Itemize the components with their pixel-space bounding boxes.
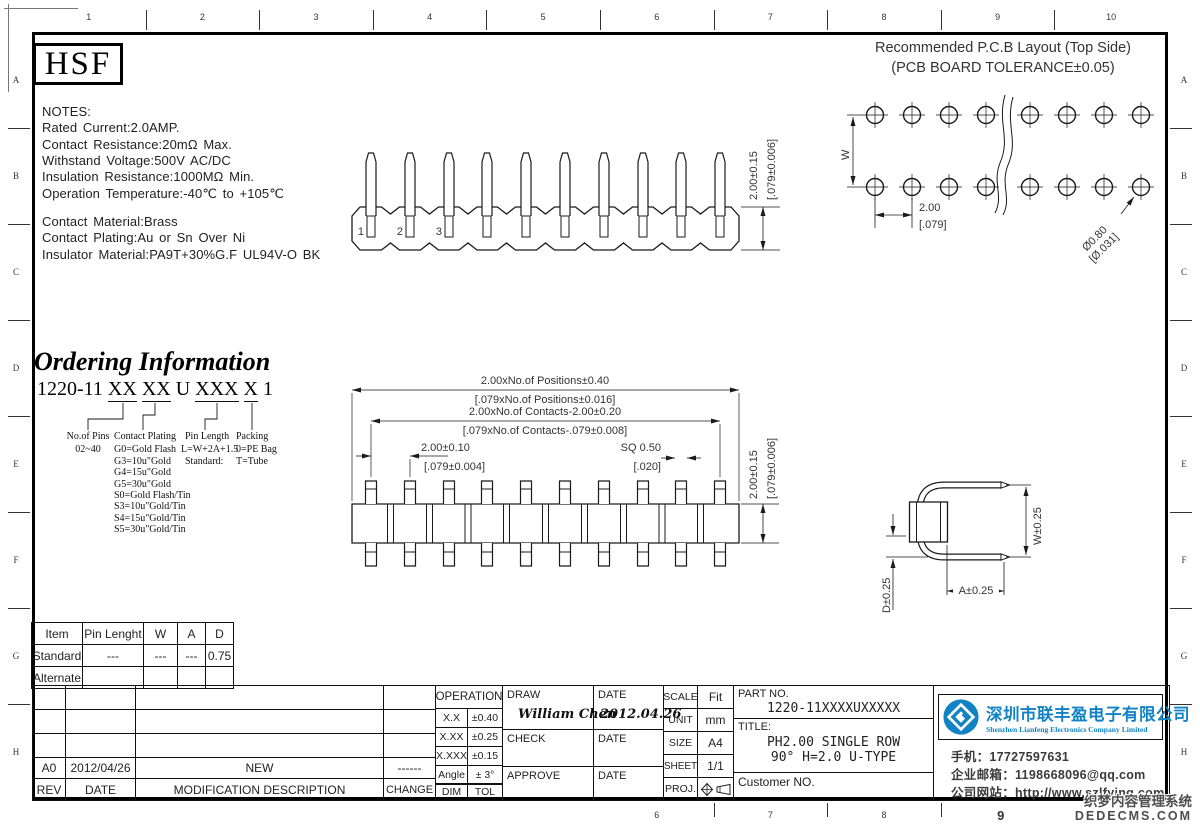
dim-text: D±0.25 (881, 578, 893, 613)
ruler-number: 10 (1054, 12, 1168, 22)
rev-cell (65, 709, 136, 734)
sheet-value: 1/1 (697, 754, 734, 778)
ruler-letter: D (1174, 320, 1194, 416)
dim-a: A±0.25 (947, 545, 1004, 597)
tol-val: ± 3° (467, 765, 503, 785)
insulator-body (352, 504, 739, 543)
part-no-value: 1220-11XXXXUXXXXX (733, 701, 934, 716)
spec-value: 0.75 (205, 644, 234, 667)
ruler-tick (146, 10, 147, 30)
ruler-number: 5 (486, 12, 600, 22)
title-line2: 90° H=2.0 U-TYPE (733, 750, 934, 765)
dim-text: [.079] (919, 219, 947, 231)
col-item: L=W+2A+1.5 (181, 444, 238, 455)
tol-val: ±0.40 (467, 708, 503, 728)
ruler-letter: C (1174, 224, 1194, 320)
ruler-tick (941, 10, 942, 30)
unit-value: mm (697, 708, 734, 732)
insulator-block (910, 502, 948, 542)
watermark-line2: DEDECMS.COM (1075, 809, 1192, 823)
col-item: Standard: (181, 456, 238, 467)
ruler-number: 7 (714, 810, 828, 820)
dim-hole-diameter: Ø0.80 [Ø.031] (1078, 197, 1134, 265)
ruler-number: 9 (941, 12, 1055, 22)
spec-header-item: Item (31, 622, 83, 645)
dim-body-height: 2.00±0.15 [.079±0.006] (741, 139, 780, 250)
ruler-letter: H (6, 704, 26, 800)
customer-no-label: Customer NO. (738, 775, 815, 789)
proj-label: PROJ. (663, 777, 698, 801)
col-item: G0=Gold Flash (114, 444, 191, 455)
watermark-line1: 织梦内容管理系统 (1075, 795, 1192, 809)
tol-dim: X.XXX (435, 746, 468, 766)
note-line: Insulator Material:PA9T+30%G.F UL94V-O B… (42, 247, 372, 263)
part-no-label: PART NO. (738, 688, 789, 700)
rev-change: ------ (383, 757, 436, 779)
ruler-tick (8, 416, 30, 417)
pin-number: 3 (436, 226, 442, 238)
rev-cell (32, 733, 66, 758)
scale-value: Fit (697, 685, 734, 709)
dim-text: W (840, 149, 852, 160)
tol-dim: X.X (435, 708, 468, 728)
tol-val: ±0.25 (467, 727, 503, 747)
dim-pin-square: SQ 0.50 [.020] (621, 442, 701, 473)
ruler-number: 8 (827, 810, 941, 820)
dim-row-spacing-w: W (840, 115, 863, 187)
col-item: T=Tube (236, 456, 277, 467)
rev-cell (383, 709, 436, 734)
rev-cell (65, 685, 136, 710)
dim-text: [.079±0.006] (766, 438, 778, 499)
ruler-tick (827, 803, 828, 817)
rev-cell (32, 709, 66, 734)
ruler-tick (1054, 10, 1055, 30)
ruler-tick (1170, 512, 1192, 513)
ruler-letter: F (1174, 512, 1194, 608)
ruler-number: 2 (146, 12, 260, 22)
hsf-logo-text: HSF (45, 46, 112, 83)
unit-label: UNIT (663, 708, 698, 732)
watermark: 织梦内容管理系统 DEDECMS.COM (1075, 795, 1192, 823)
col-item: S4=15u"Gold/Tin (114, 513, 191, 524)
ordering-col-pins: No.of Pins 02~40 (58, 431, 118, 456)
ordering-col-pinlength: Pin Length L=W+2A+1.5 Standard: (181, 431, 238, 467)
pcb-layout-drawing: W 2.00 [.079] Ø0.80 [Ø.031] (740, 88, 1175, 268)
ordering-col-plating: Contact Plating G0=Gold Flash G3=10u"Gol… (114, 431, 191, 536)
date-label: DATE (598, 689, 627, 701)
spec-row-label: Standard (31, 644, 83, 667)
ruler-letter: B (6, 128, 26, 224)
dim-pin-pitch: 2.00±0.10 [.079±0.004] (356, 442, 485, 477)
col-item: G5=30u"Gold (114, 479, 191, 490)
dim-text: 2.00±0.10 (421, 442, 470, 454)
date-label: DATE (598, 770, 627, 782)
company-name-en: Shenzhen Lianfeng Electronics Company Li… (986, 725, 1190, 734)
dim-text: [.079±0.004] (424, 461, 485, 473)
col-item: S0=Gold Flash/Tin (114, 490, 191, 501)
rev-cell (383, 733, 436, 758)
dim-hole-pitch: 2.00 [.079] (875, 198, 947, 231)
dim-text: 2.00 (919, 202, 940, 214)
size-label: SIZE (663, 731, 698, 755)
ruler-number: 7 (714, 12, 828, 22)
tol-val: ±0.15 (467, 746, 503, 766)
note-line: Contact Material:Brass (42, 214, 372, 230)
tol-val: TOL (467, 783, 503, 801)
proj-symbol-cell (697, 777, 734, 801)
ruler-letter: C (6, 224, 26, 320)
ruler-tick (714, 803, 715, 817)
company-phone: 手机：17727597631 (951, 746, 1069, 765)
ruler-tick (827, 10, 828, 30)
company-email: 企业邮箱：1198668096@qq.com (951, 764, 1146, 783)
approve-label: APPROVE (507, 770, 560, 782)
spec-header-pinlength: Pin Lenght (82, 622, 144, 645)
col-header: Contact Plating (114, 431, 191, 442)
spec-header-a: A (177, 622, 206, 645)
hsf-logo: HSF (33, 43, 123, 85)
size-value: A4 (697, 731, 734, 755)
dim-text: W±0.25 (1032, 507, 1044, 545)
ruler-tick (600, 10, 601, 30)
ruler-number: 8 (827, 12, 941, 22)
dim-body-height: 2.00±0.15 [.079±0.006] (741, 438, 779, 543)
ruler-tick (8, 224, 30, 225)
rev-header: CHANGE (383, 778, 436, 801)
corner-mark (4, 8, 78, 9)
ruler-tick (8, 128, 30, 129)
ruler-number: 6 (600, 810, 714, 820)
company-name-box: 深圳市联丰盈电子有限公司 Shenzhen Lianfeng Electroni… (938, 694, 1163, 740)
pin-number: 2 (397, 226, 403, 238)
rev-date: 2012/04/26 (65, 757, 136, 779)
spec-header-w: W (143, 622, 178, 645)
ruler-tick (373, 10, 374, 30)
ruler-tick (1170, 320, 1192, 321)
spec-header-d: D (205, 622, 234, 645)
col-item: S5=30u"Gold/Tin (114, 524, 191, 535)
rev-description: NEW (135, 757, 384, 779)
company-logo-icon (942, 698, 980, 736)
ruler-letter: B (1174, 128, 1194, 224)
note-line: Insulation Resistance:1000MΩ Min. (42, 169, 372, 185)
spec-value: --- (177, 644, 206, 667)
ruler-tick (1170, 608, 1192, 609)
title-line1: PH2.00 SINGLE ROW (733, 735, 934, 750)
ruler-tick (1170, 416, 1192, 417)
pin-number: 1 (358, 226, 364, 238)
header-top-view-drawing: 1 2 3 2.00±0.15 [.079±0.006] (340, 125, 790, 260)
break-lines (995, 95, 1013, 215)
ruler-letter: F (6, 512, 26, 608)
rev-id: A0 (32, 757, 66, 779)
ruler-tick (8, 704, 30, 705)
spec-value: --- (143, 644, 178, 667)
col-header: No.of Pins (58, 431, 118, 442)
note-line: Contact Plating:Au or Sn Over Ni (42, 230, 372, 246)
ordering-col-packing: Packing 0=PE Bag T=Tube (236, 431, 277, 467)
drawing-sheet: 1 2 3 4 5 6 7 8 9 10 6 7 8 9 A B C D E F (0, 0, 1200, 832)
check-label: CHECK (507, 733, 546, 745)
tol-dim: X.XX (435, 727, 468, 747)
col-item: G4=15u"Gold (114, 467, 191, 478)
rev-header: REV (32, 778, 66, 801)
rev-header: MODIFICATION DESCRIPTION (135, 778, 384, 801)
dim-text: A±0.25 (959, 585, 994, 597)
col-item: G3=10u"Gold (114, 456, 191, 467)
rev-cell (135, 709, 384, 734)
dim-text: 2.00±0.15 (748, 450, 760, 499)
dim-text: [.079xNo.of Contacts-.079±0.008] (463, 425, 627, 437)
ruler-tick (941, 803, 942, 817)
rev-header: DATE (65, 778, 136, 801)
col-item: 0=PE Bag (236, 444, 277, 455)
dim-text: 2.00xNo.of Positions±0.40 (481, 375, 609, 387)
ruler-number: 9 (944, 808, 1058, 823)
u-type-side-view-drawing: W±0.25 A±0.25 D±0.25 (875, 450, 1100, 622)
header-front-view-drawing: 2.00xNo.of Positions±0.40 [.079xNo.of Po… (340, 365, 795, 580)
ruler-letter: G (6, 608, 26, 704)
col-header: Packing (236, 431, 277, 442)
note-line: Contact Resistance:20mΩ Max. (42, 137, 372, 153)
ruler-letter: A (1174, 32, 1194, 128)
ordering-info-title: Ordering Information (34, 347, 270, 377)
sheet-label: SHEET (663, 754, 698, 778)
rev-cell (32, 685, 66, 710)
ruler-tick (8, 608, 30, 609)
pcb-layout-subtitle: (PCB BOARD TOLERANCE±0.05) (833, 60, 1173, 76)
ruler-tick (486, 10, 487, 30)
ruler-tick (714, 10, 715, 30)
date-label: DATE (598, 733, 627, 745)
rev-cell (135, 733, 384, 758)
col-header: Pin Length (181, 431, 238, 442)
draw-label: DRAW (507, 689, 540, 701)
rev-cell (135, 685, 384, 710)
ruler-number: 1 (32, 12, 146, 22)
dim-text: 2.00xNo.of Contacts-2.00±0.20 (469, 406, 621, 418)
spec-value: --- (82, 644, 144, 667)
tol-dim: Angle (435, 765, 468, 785)
note-line: Rated Current:2.0AMP. (42, 120, 372, 136)
ruler-letter: D (6, 320, 26, 416)
ruler-tick (259, 10, 260, 30)
tol-dim: DIM (435, 783, 468, 801)
dim-text: 2.00±0.15 (748, 151, 760, 200)
dim-text: [.079±0.006] (766, 139, 778, 200)
ruler-tick (8, 320, 30, 321)
dim-text: [.079xNo.of Positions±0.016] (475, 394, 616, 406)
scale-label: SCALE (663, 685, 698, 709)
ruler-number: 3 (259, 12, 373, 22)
rev-cell (383, 685, 436, 710)
projection-symbol-icon (701, 783, 731, 796)
ruler-number: 4 (373, 12, 487, 22)
col-item: S3=10u"Gold/Tin (114, 501, 191, 512)
dim-w: W±0.25 (1006, 485, 1044, 557)
ruler-number: 6 (600, 12, 714, 22)
note-line: NOTES: (42, 104, 372, 120)
dim-text: SQ 0.50 (621, 442, 661, 454)
note-line: Operation Temperature:-40℃ to +105℃ (42, 186, 372, 202)
note-line: Withstand Voltage:500V AC/DC (42, 153, 372, 169)
ruler-tick (8, 512, 30, 513)
rev-cell (65, 733, 136, 758)
ruler-letter: E (6, 416, 26, 512)
pcb-layout-title: Recommended P.C.B Layout (Top Side) (833, 40, 1173, 56)
ruler-letter: A (6, 32, 26, 128)
company-name-cn: 深圳市联丰盈电子有限公司 (986, 701, 1190, 725)
title-label: TITLE: (738, 721, 771, 733)
dim-text: [.020] (633, 461, 661, 473)
col-item: 02~40 (58, 444, 118, 455)
tol-header: OPERATION (435, 685, 503, 709)
ruler-letter: G (1174, 608, 1194, 704)
ruler-letter: E (1174, 416, 1194, 512)
